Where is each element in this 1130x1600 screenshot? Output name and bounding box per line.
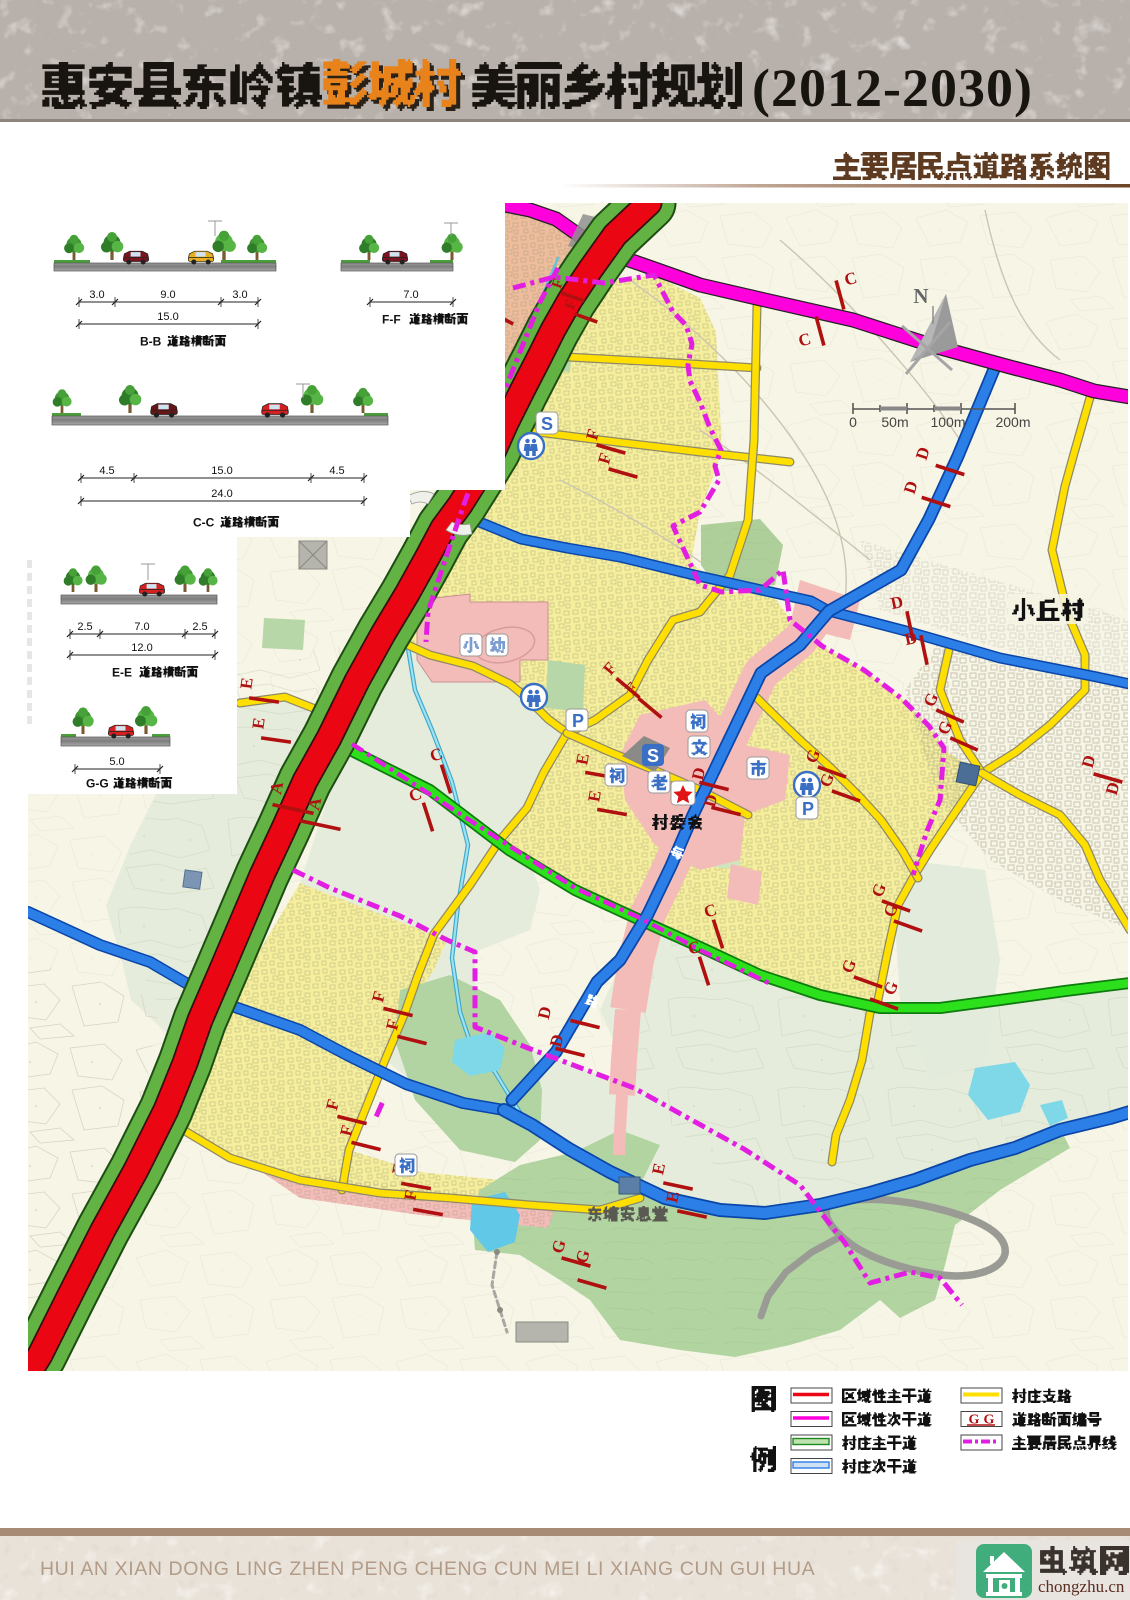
svg-text:15.0: 15.0 [157, 311, 178, 323]
svg-text:B-B: B-B [140, 335, 162, 349]
svg-text:5.0: 5.0 [109, 756, 124, 768]
svg-text:100m: 100m [930, 414, 965, 430]
svg-text:3.0: 3.0 [89, 289, 104, 301]
svg-text:P: P [572, 711, 584, 731]
svg-text:G-G: G-G [86, 777, 109, 791]
svg-text:4.5: 4.5 [99, 465, 114, 477]
svg-text:N: N [913, 284, 928, 308]
svg-text:3.0: 3.0 [232, 289, 247, 301]
svg-text:S: S [541, 414, 553, 434]
svg-text:7.0: 7.0 [403, 289, 418, 301]
svg-text:9.0: 9.0 [160, 289, 175, 301]
svg-text:15.0: 15.0 [211, 465, 232, 477]
svg-text:0: 0 [849, 414, 857, 430]
svg-text:12.0: 12.0 [131, 642, 152, 654]
svg-text:P: P [802, 799, 814, 819]
svg-text:(2012-2030): (2012-2030) [752, 58, 1033, 118]
svg-text:chongzhu.cn: chongzhu.cn [1038, 1577, 1125, 1596]
svg-text:2.5: 2.5 [77, 621, 92, 633]
svg-text:7.0: 7.0 [134, 621, 149, 633]
svg-text:50m: 50m [881, 414, 908, 430]
svg-text:24.0: 24.0 [211, 488, 232, 500]
svg-text:HUI AN XIAN DONG LING ZHEN PEN: HUI AN XIAN DONG LING ZHEN PENG CHENG CU… [40, 1558, 815, 1580]
svg-text:C-C: C-C [193, 516, 215, 530]
svg-text:200m: 200m [995, 414, 1030, 430]
svg-text:S: S [647, 746, 659, 766]
svg-text:4.5: 4.5 [329, 465, 344, 477]
svg-text:E-E: E-E [112, 666, 132, 680]
svg-text:F-F: F-F [382, 313, 401, 327]
svg-text:2.5: 2.5 [192, 621, 207, 633]
